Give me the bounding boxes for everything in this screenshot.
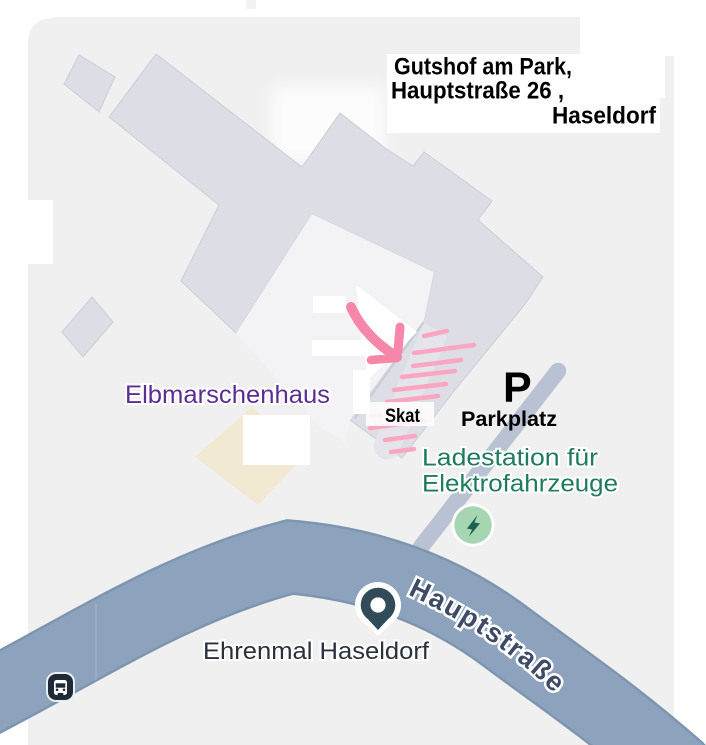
svg-text:Elektrofahrzeuge: Elektrofahrzeuge bbox=[422, 471, 618, 498]
svg-text:Skat: Skat bbox=[385, 406, 421, 427]
svg-text:Gutshof am Park,: Gutshof am Park, bbox=[394, 54, 572, 81]
svg-text:Elbmarschenhaus: Elbmarschenhaus bbox=[125, 381, 330, 409]
svg-text:Ladestation für: Ladestation für bbox=[422, 445, 598, 472]
svg-text:P: P bbox=[503, 364, 532, 412]
svg-text:Haseldorf: Haseldorf bbox=[552, 103, 657, 130]
svg-text:Ehrenmal Haseldorf: Ehrenmal Haseldorf bbox=[203, 638, 429, 665]
svg-text:Hauptstraße 26 ,: Hauptstraße 26 , bbox=[391, 78, 564, 105]
svg-text:Parkplatz: Parkplatz bbox=[461, 408, 557, 431]
